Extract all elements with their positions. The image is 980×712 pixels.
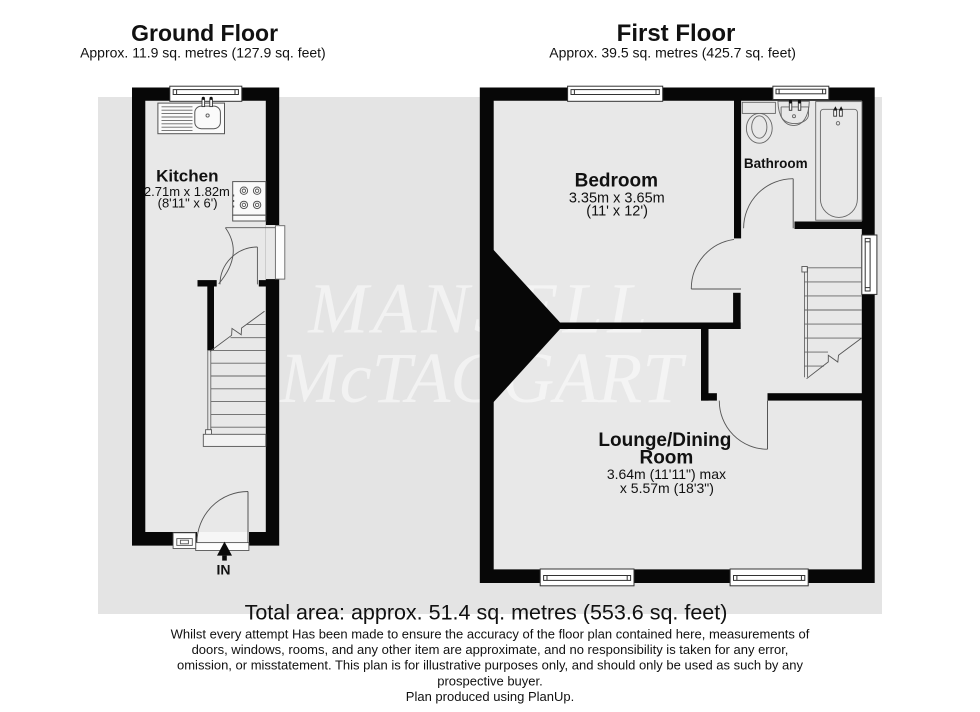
svg-text:Approx. 39.5 sq. metres (425.7: Approx. 39.5 sq. metres (425.7 sq. feet): [549, 45, 796, 61]
svg-text:(8'11" x 6'): (8'11" x 6'): [158, 195, 218, 210]
svg-text:Plan produced using PlanUp.: Plan produced using PlanUp.: [406, 689, 574, 704]
svg-text:First Floor: First Floor: [617, 20, 736, 47]
svg-text:Approx. 11.9 sq. metres (127.9: Approx. 11.9 sq. metres (127.9 sq. feet): [80, 45, 326, 61]
svg-text:omission, or misstatement. Thi: omission, or misstatement. This plan is …: [177, 658, 803, 673]
svg-text:MANSELL: MANSELL: [307, 269, 652, 349]
svg-text:Kitchen: Kitchen: [156, 167, 218, 186]
svg-text:Total area: approx. 51.4 sq. m: Total area: approx. 51.4 sq. metres (553…: [245, 601, 728, 625]
svg-text:IN: IN: [217, 562, 231, 578]
svg-text:prospective buyer.: prospective buyer.: [437, 673, 543, 688]
svg-text:Bathroom: Bathroom: [744, 156, 808, 171]
svg-text:Whilst every attempt Has been: Whilst every attempt Has been made to en…: [171, 627, 810, 642]
svg-text:(11' x 12'): (11' x 12'): [586, 203, 648, 219]
svg-text:Ground Floor: Ground Floor: [131, 20, 278, 46]
svg-text:Bedroom: Bedroom: [575, 171, 658, 192]
svg-text:doors, windows, rooms, and any: doors, windows, rooms, and any other ite…: [192, 642, 789, 657]
svg-text:x 5.57m (18'3"): x 5.57m (18'3"): [620, 480, 714, 496]
